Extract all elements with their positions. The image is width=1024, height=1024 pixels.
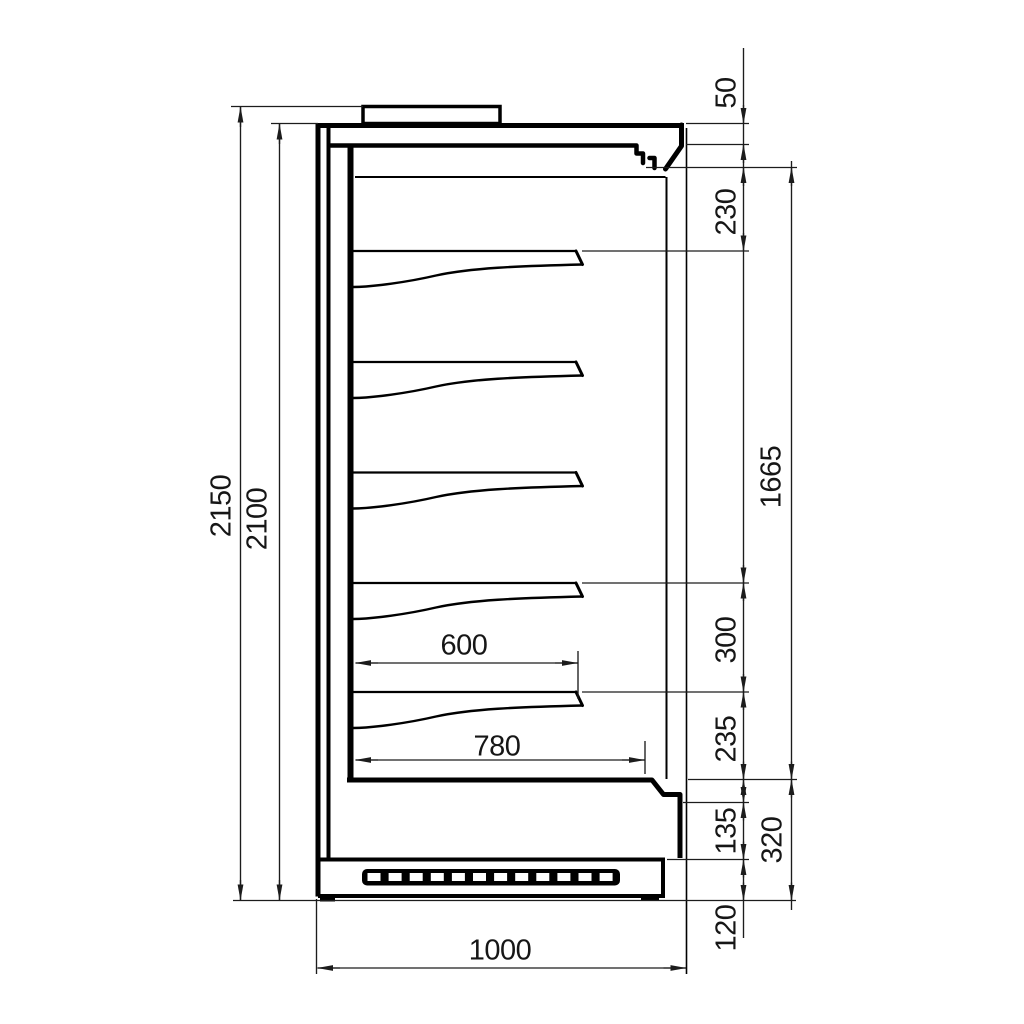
dim-label-base-section: 320: [759, 817, 788, 864]
dim-label-shelf-pitch: 300: [713, 617, 742, 664]
dim-label-shelf-depth: 600: [441, 632, 488, 661]
dim-label-overall-height: 2150: [208, 475, 237, 538]
dim-label-overall-depth: 1000: [469, 937, 532, 966]
bottom-deck: [347, 780, 680, 858]
roof-block: [363, 107, 500, 124]
ceiling-air-duct: [331, 146, 643, 164]
technical-drawing-page: 2150 2100 50 230 1665 300 235 135 320 12…: [0, 0, 1024, 1024]
dim-label-front-panel: 135: [713, 808, 742, 855]
dim-label-opening-height: 1665: [758, 446, 787, 509]
dim-label-shelf-to-deck: 235: [713, 716, 742, 763]
cabinet-section-linework: [0, 0, 1024, 1024]
air-nozzle-hook: [650, 158, 655, 168]
canopy-front: [666, 125, 682, 169]
cabinet-structure: [316, 107, 687, 975]
base-grille: [362, 869, 620, 886]
dim-label-canopy-top: 50: [713, 77, 742, 108]
dim-label-cabinet-height: 2100: [244, 488, 273, 551]
dim-label-deck-depth: 780: [474, 733, 521, 762]
dim-label-first-shelf-offset: 230: [713, 189, 742, 236]
dim-label-plinth: 120: [713, 905, 742, 952]
